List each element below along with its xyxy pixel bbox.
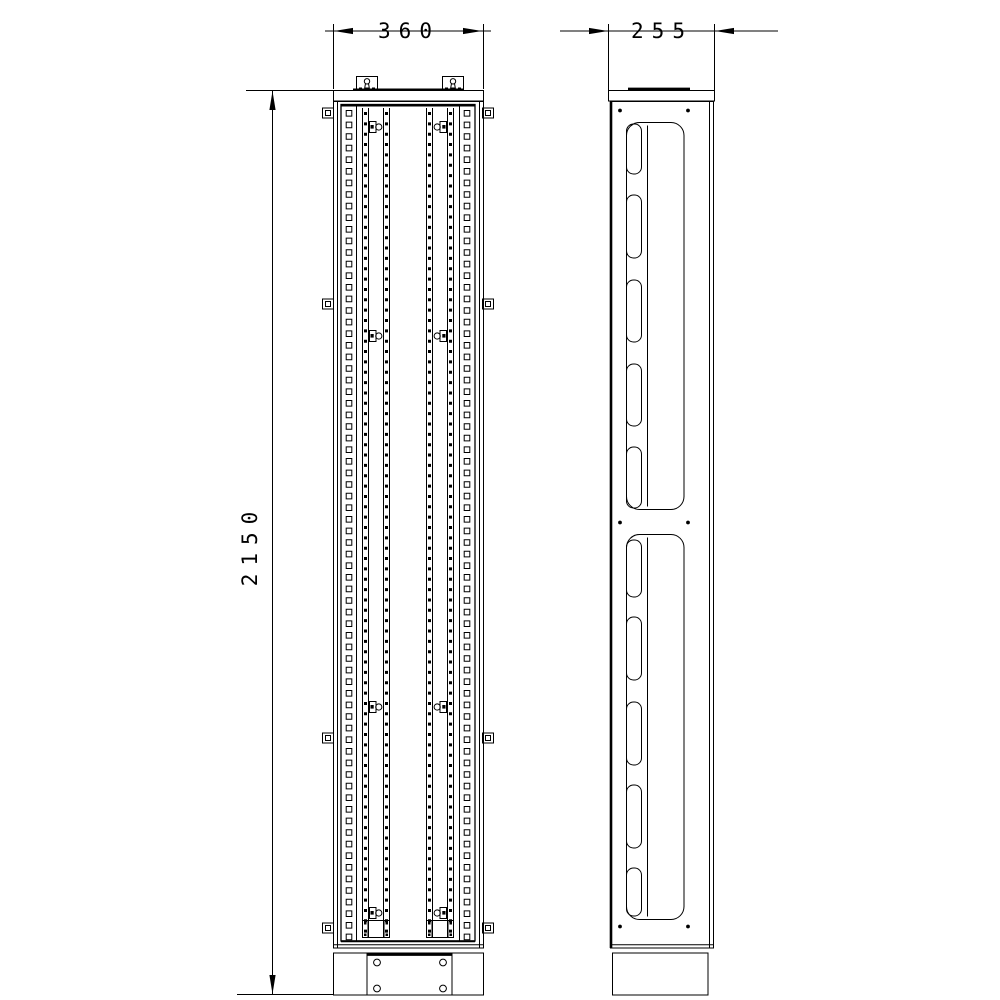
dimension-annotations: 360 255 2150 [237, 19, 778, 995]
cad-drawing: 360 255 2150 [0, 0, 1000, 1000]
dimension-label-height: 2150 [238, 504, 262, 587]
side-view [609, 89, 715, 995]
front-view [323, 77, 494, 996]
drawing-sheet: 360 255 2150 [0, 0, 1000, 1000]
